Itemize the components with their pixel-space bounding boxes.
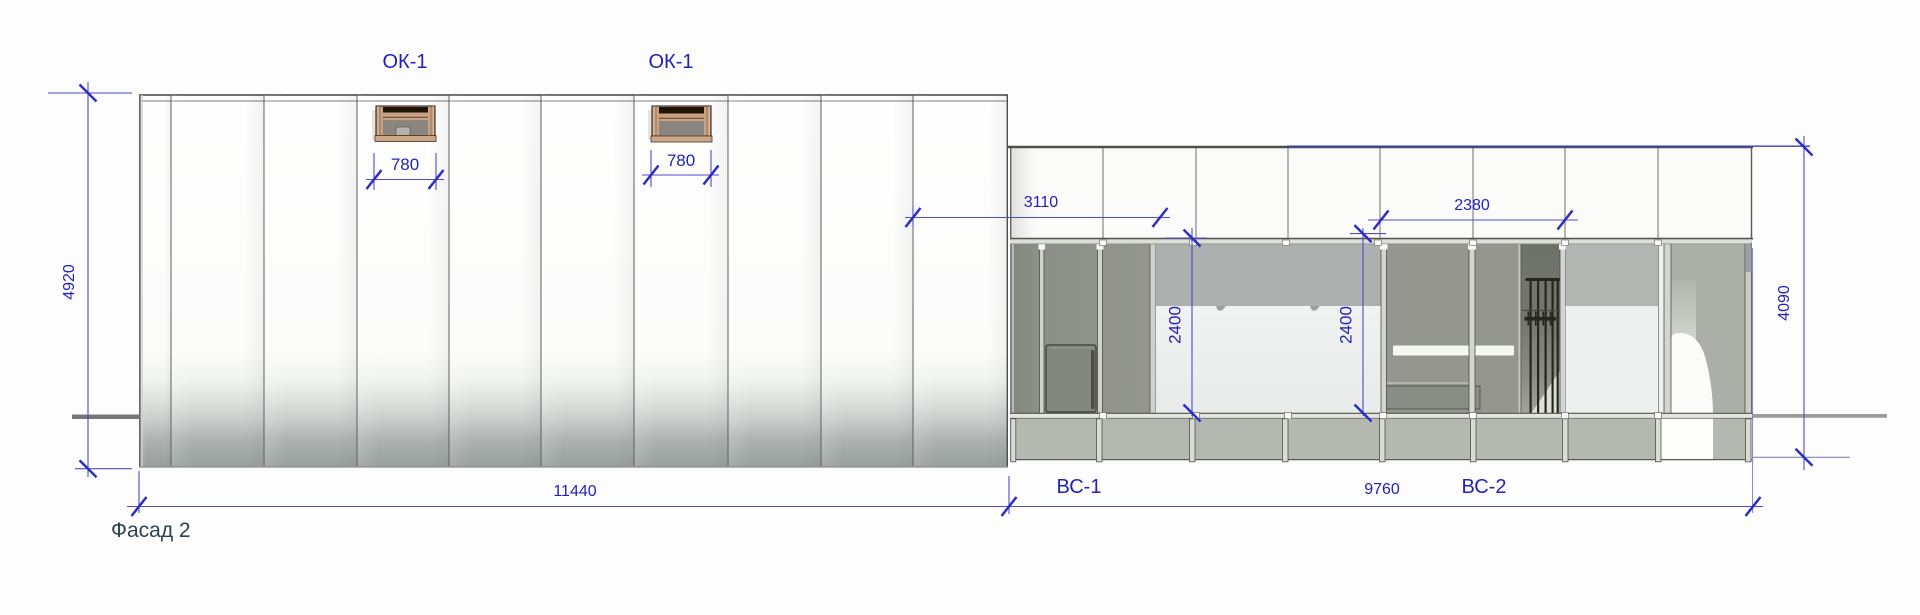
svg-text:780: 780 bbox=[391, 155, 419, 174]
svg-text:3110: 3110 bbox=[1024, 194, 1059, 211]
svg-text:ВС-2: ВС-2 bbox=[1462, 476, 1507, 498]
svg-text:4920: 4920 bbox=[61, 264, 78, 300]
svg-text:Фасад 2: Фасад 2 bbox=[111, 519, 191, 542]
svg-text:2400: 2400 bbox=[1336, 306, 1355, 344]
svg-text:4090: 4090 bbox=[1776, 285, 1793, 321]
svg-text:2400: 2400 bbox=[1165, 306, 1184, 344]
svg-text:2380: 2380 bbox=[1454, 197, 1490, 214]
svg-text:9760: 9760 bbox=[1364, 481, 1400, 498]
svg-text:ОК-1: ОК-1 bbox=[383, 51, 428, 73]
svg-text:ВС-1: ВС-1 bbox=[1057, 476, 1102, 498]
svg-text:11440: 11440 bbox=[553, 483, 596, 500]
svg-text:ОК-1: ОК-1 bbox=[649, 51, 694, 73]
svg-text:780: 780 bbox=[667, 151, 695, 170]
